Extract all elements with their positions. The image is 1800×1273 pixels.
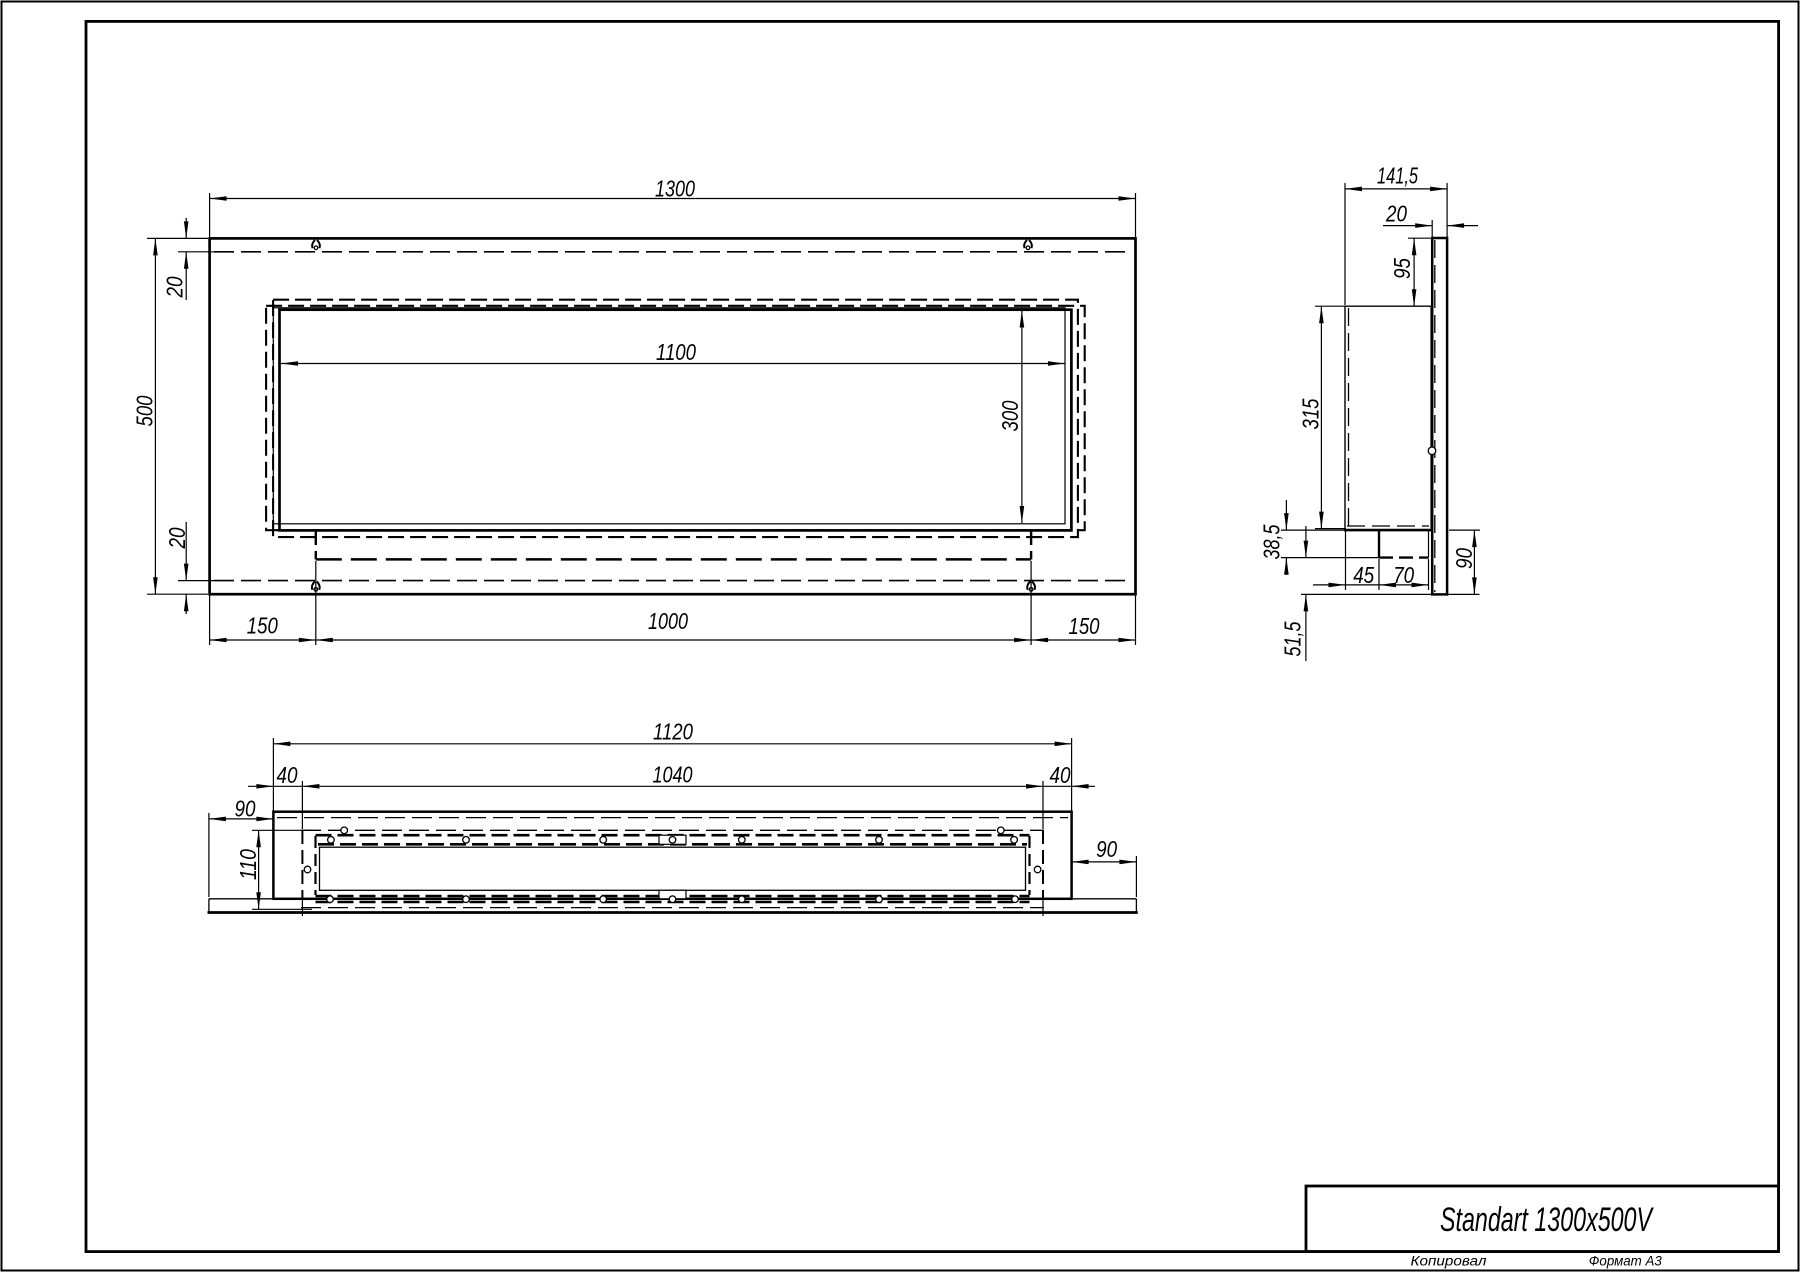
svg-text:1300: 1300 (655, 175, 695, 201)
svg-text:1040: 1040 (653, 761, 693, 787)
svg-text:150: 150 (247, 612, 278, 638)
svg-text:40: 40 (277, 762, 298, 788)
svg-text:20: 20 (1385, 200, 1407, 226)
svg-text:95: 95 (1389, 258, 1415, 279)
svg-text:315: 315 (1297, 398, 1323, 429)
svg-text:38,5: 38,5 (1258, 524, 1284, 559)
svg-text:45: 45 (1353, 562, 1374, 588)
svg-text:90: 90 (235, 795, 256, 821)
svg-text:Standart 1300x500V: Standart 1300x500V (1440, 1201, 1654, 1239)
svg-text:51,5: 51,5 (1279, 621, 1305, 656)
svg-text:1100: 1100 (656, 339, 696, 365)
svg-text:110: 110 (235, 849, 261, 880)
svg-text:141,5: 141,5 (1377, 162, 1418, 188)
svg-text:Копировал: Копировал (1411, 1254, 1487, 1269)
svg-text:150: 150 (1069, 613, 1100, 639)
svg-text:20: 20 (162, 276, 188, 298)
svg-text:1000: 1000 (648, 608, 688, 634)
svg-text:20: 20 (164, 527, 190, 549)
svg-text:90: 90 (1451, 548, 1477, 569)
svg-text:1120: 1120 (653, 718, 693, 744)
svg-text:40: 40 (1050, 762, 1071, 788)
svg-text:300: 300 (997, 400, 1023, 431)
svg-text:70: 70 (1393, 562, 1414, 588)
svg-text:90: 90 (1096, 836, 1117, 862)
svg-text:500: 500 (132, 395, 158, 426)
svg-text:Формат А3: Формат А3 (1589, 1254, 1662, 1269)
